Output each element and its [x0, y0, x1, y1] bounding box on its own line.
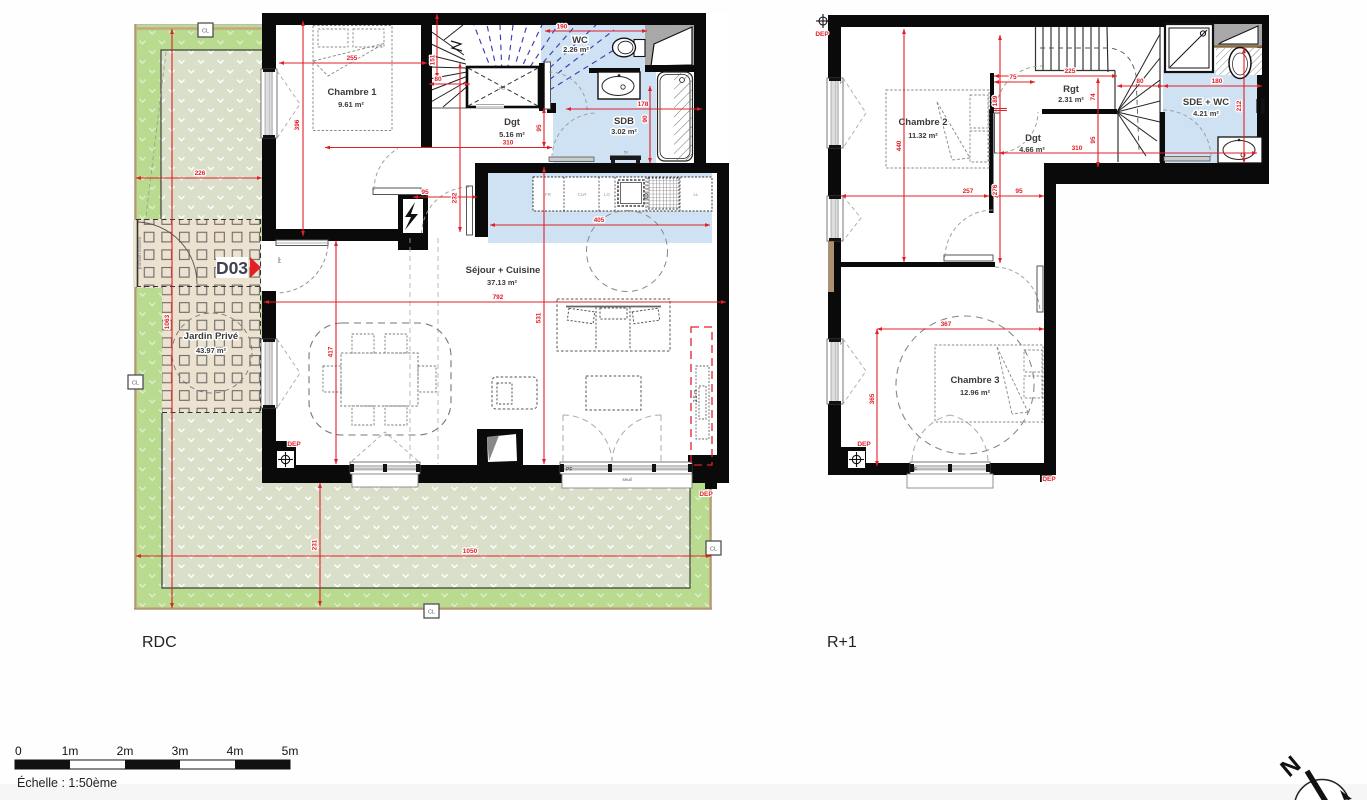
svg-text:1050: 1050 [463, 548, 478, 555]
svg-text:11.32 m²: 11.32 m² [908, 131, 938, 140]
svg-text:190: 190 [557, 24, 568, 31]
svg-text:4m: 4m [227, 744, 244, 758]
svg-text:310: 310 [503, 140, 514, 147]
svg-text:189: 189 [992, 95, 999, 106]
svg-text:232: 232 [452, 192, 459, 203]
svg-text:90: 90 [642, 115, 649, 123]
svg-text:DEP: DEP [857, 441, 871, 448]
svg-text:792: 792 [493, 294, 504, 301]
svg-text:367: 367 [941, 321, 952, 328]
svg-text:225: 225 [1065, 68, 1076, 75]
svg-text:DEP: DEP [1042, 476, 1056, 483]
svg-text:80: 80 [1136, 78, 1144, 85]
svg-text:80: 80 [434, 76, 442, 83]
svg-text:SDB: SDB [614, 116, 634, 127]
svg-text:0: 0 [15, 744, 22, 758]
svg-text:CLR: CLR [577, 192, 587, 197]
svg-text:1063: 1063 [164, 314, 171, 329]
svg-text:95: 95 [1015, 188, 1023, 195]
svg-text:50: 50 [624, 150, 629, 155]
svg-text:417: 417 [328, 346, 335, 357]
svg-text:440: 440 [896, 140, 903, 151]
svg-text:95: 95 [421, 189, 429, 196]
svg-text:CL: CL [710, 547, 717, 553]
svg-text:DEP: DEP [287, 441, 301, 448]
svg-text:RDC: RDC [142, 634, 177, 651]
svg-text:CL: CL [132, 381, 139, 387]
svg-text:Chambre 2: Chambre 2 [898, 117, 947, 128]
svg-text:CL: CL [428, 610, 435, 616]
svg-text:D03: D03 [216, 258, 248, 278]
svg-text:R+1: R+1 [827, 634, 857, 651]
svg-text:310: 310 [1072, 145, 1083, 152]
svg-text:257: 257 [963, 188, 974, 195]
svg-text:portillon d'accès: portillon d'accès [137, 236, 142, 269]
svg-text:DEP: DEP [815, 31, 829, 38]
svg-text:Dgt: Dgt [1025, 133, 1042, 144]
svg-text:Échelle : 1:50ème: Échelle : 1:50ème [17, 775, 117, 790]
svg-text:SDE + WC: SDE + WC [1183, 97, 1229, 108]
svg-text:LG: LG [604, 192, 611, 197]
svg-text:405: 405 [594, 217, 605, 224]
svg-text:Chambre 1: Chambre 1 [327, 87, 377, 98]
svg-text:178: 178 [638, 101, 649, 108]
svg-text:CL: CL [202, 29, 209, 35]
svg-text:276: 276 [992, 184, 999, 195]
svg-text:12.96 m²: 12.96 m² [960, 388, 991, 397]
svg-text:365: 365 [869, 393, 876, 404]
svg-text:Chambre 3: Chambre 3 [950, 375, 999, 386]
svg-text:Dgt: Dgt [504, 117, 521, 128]
svg-text:3m: 3m [172, 744, 189, 758]
svg-text:Séjour + Cuisine: Séjour + Cuisine [466, 265, 541, 276]
svg-text:2m: 2m [117, 744, 134, 758]
svg-text:PL: PL [499, 86, 505, 91]
svg-text:Rgt: Rgt [1063, 84, 1080, 95]
svg-text:Jardin Privé: Jardin Privé [184, 331, 238, 342]
svg-text:226: 226 [195, 170, 206, 177]
svg-text:seuil: seuil [622, 477, 631, 482]
svg-text:LL: LL [693, 192, 699, 197]
svg-text:5m: 5m [282, 744, 299, 758]
svg-text:9.61 m²: 9.61 m² [338, 100, 364, 109]
svg-text:5.16 m²: 5.16 m² [499, 130, 525, 139]
svg-text:2.26 m²: 2.26 m² [563, 45, 589, 54]
svg-text:75: 75 [1009, 74, 1017, 81]
svg-text:FR: FR [545, 192, 552, 197]
svg-text:95: 95 [1090, 136, 1097, 144]
svg-text:37.13 m²: 37.13 m² [487, 278, 518, 287]
svg-text:396: 396 [294, 119, 301, 130]
svg-text:255: 255 [347, 55, 358, 62]
svg-text:151: 151 [430, 54, 437, 65]
svg-text:2.5 m: 2.5 m [693, 390, 699, 403]
svg-text:F: F [914, 467, 917, 473]
svg-text:3.02 m²: 3.02 m² [611, 127, 637, 136]
svg-text:PF: PF [566, 467, 572, 473]
svg-text:4.21 m²: 4.21 m² [1193, 109, 1219, 118]
svg-text:74: 74 [1090, 93, 1097, 101]
svg-text:1m: 1m [62, 744, 79, 758]
svg-text:DEP: DEP [699, 491, 713, 498]
svg-text:2.31 m²: 2.31 m² [1058, 95, 1084, 104]
svg-text:95: 95 [536, 124, 543, 132]
svg-text:212: 212 [1236, 100, 1243, 111]
svg-text:180: 180 [1212, 78, 1223, 85]
svg-text:PP: PP [277, 257, 282, 263]
svg-text:531: 531 [536, 312, 543, 323]
svg-text:231: 231 [312, 539, 319, 550]
svg-text:43.97 m²: 43.97 m² [196, 346, 227, 355]
